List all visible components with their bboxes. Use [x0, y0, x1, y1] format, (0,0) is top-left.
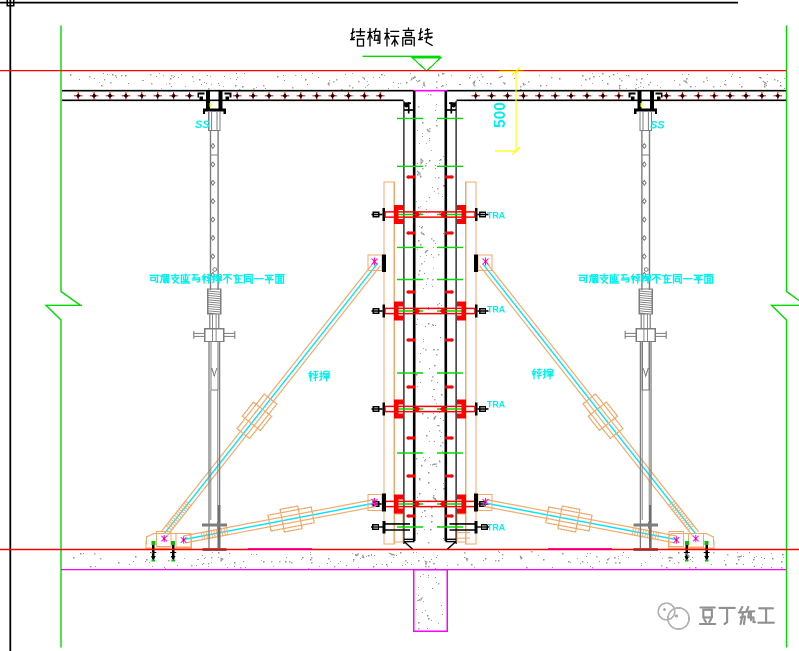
svg-text:TRA: TRA [487, 305, 506, 315]
svg-text:TRA: TRA [487, 400, 506, 410]
svg-text:500: 500 [492, 102, 509, 128]
svg-text:TRA: TRA [487, 211, 506, 221]
svg-text:SS: SS [195, 119, 210, 131]
svg-text:SS: SS [650, 120, 665, 132]
svg-text:TRA: TRA [487, 523, 506, 533]
